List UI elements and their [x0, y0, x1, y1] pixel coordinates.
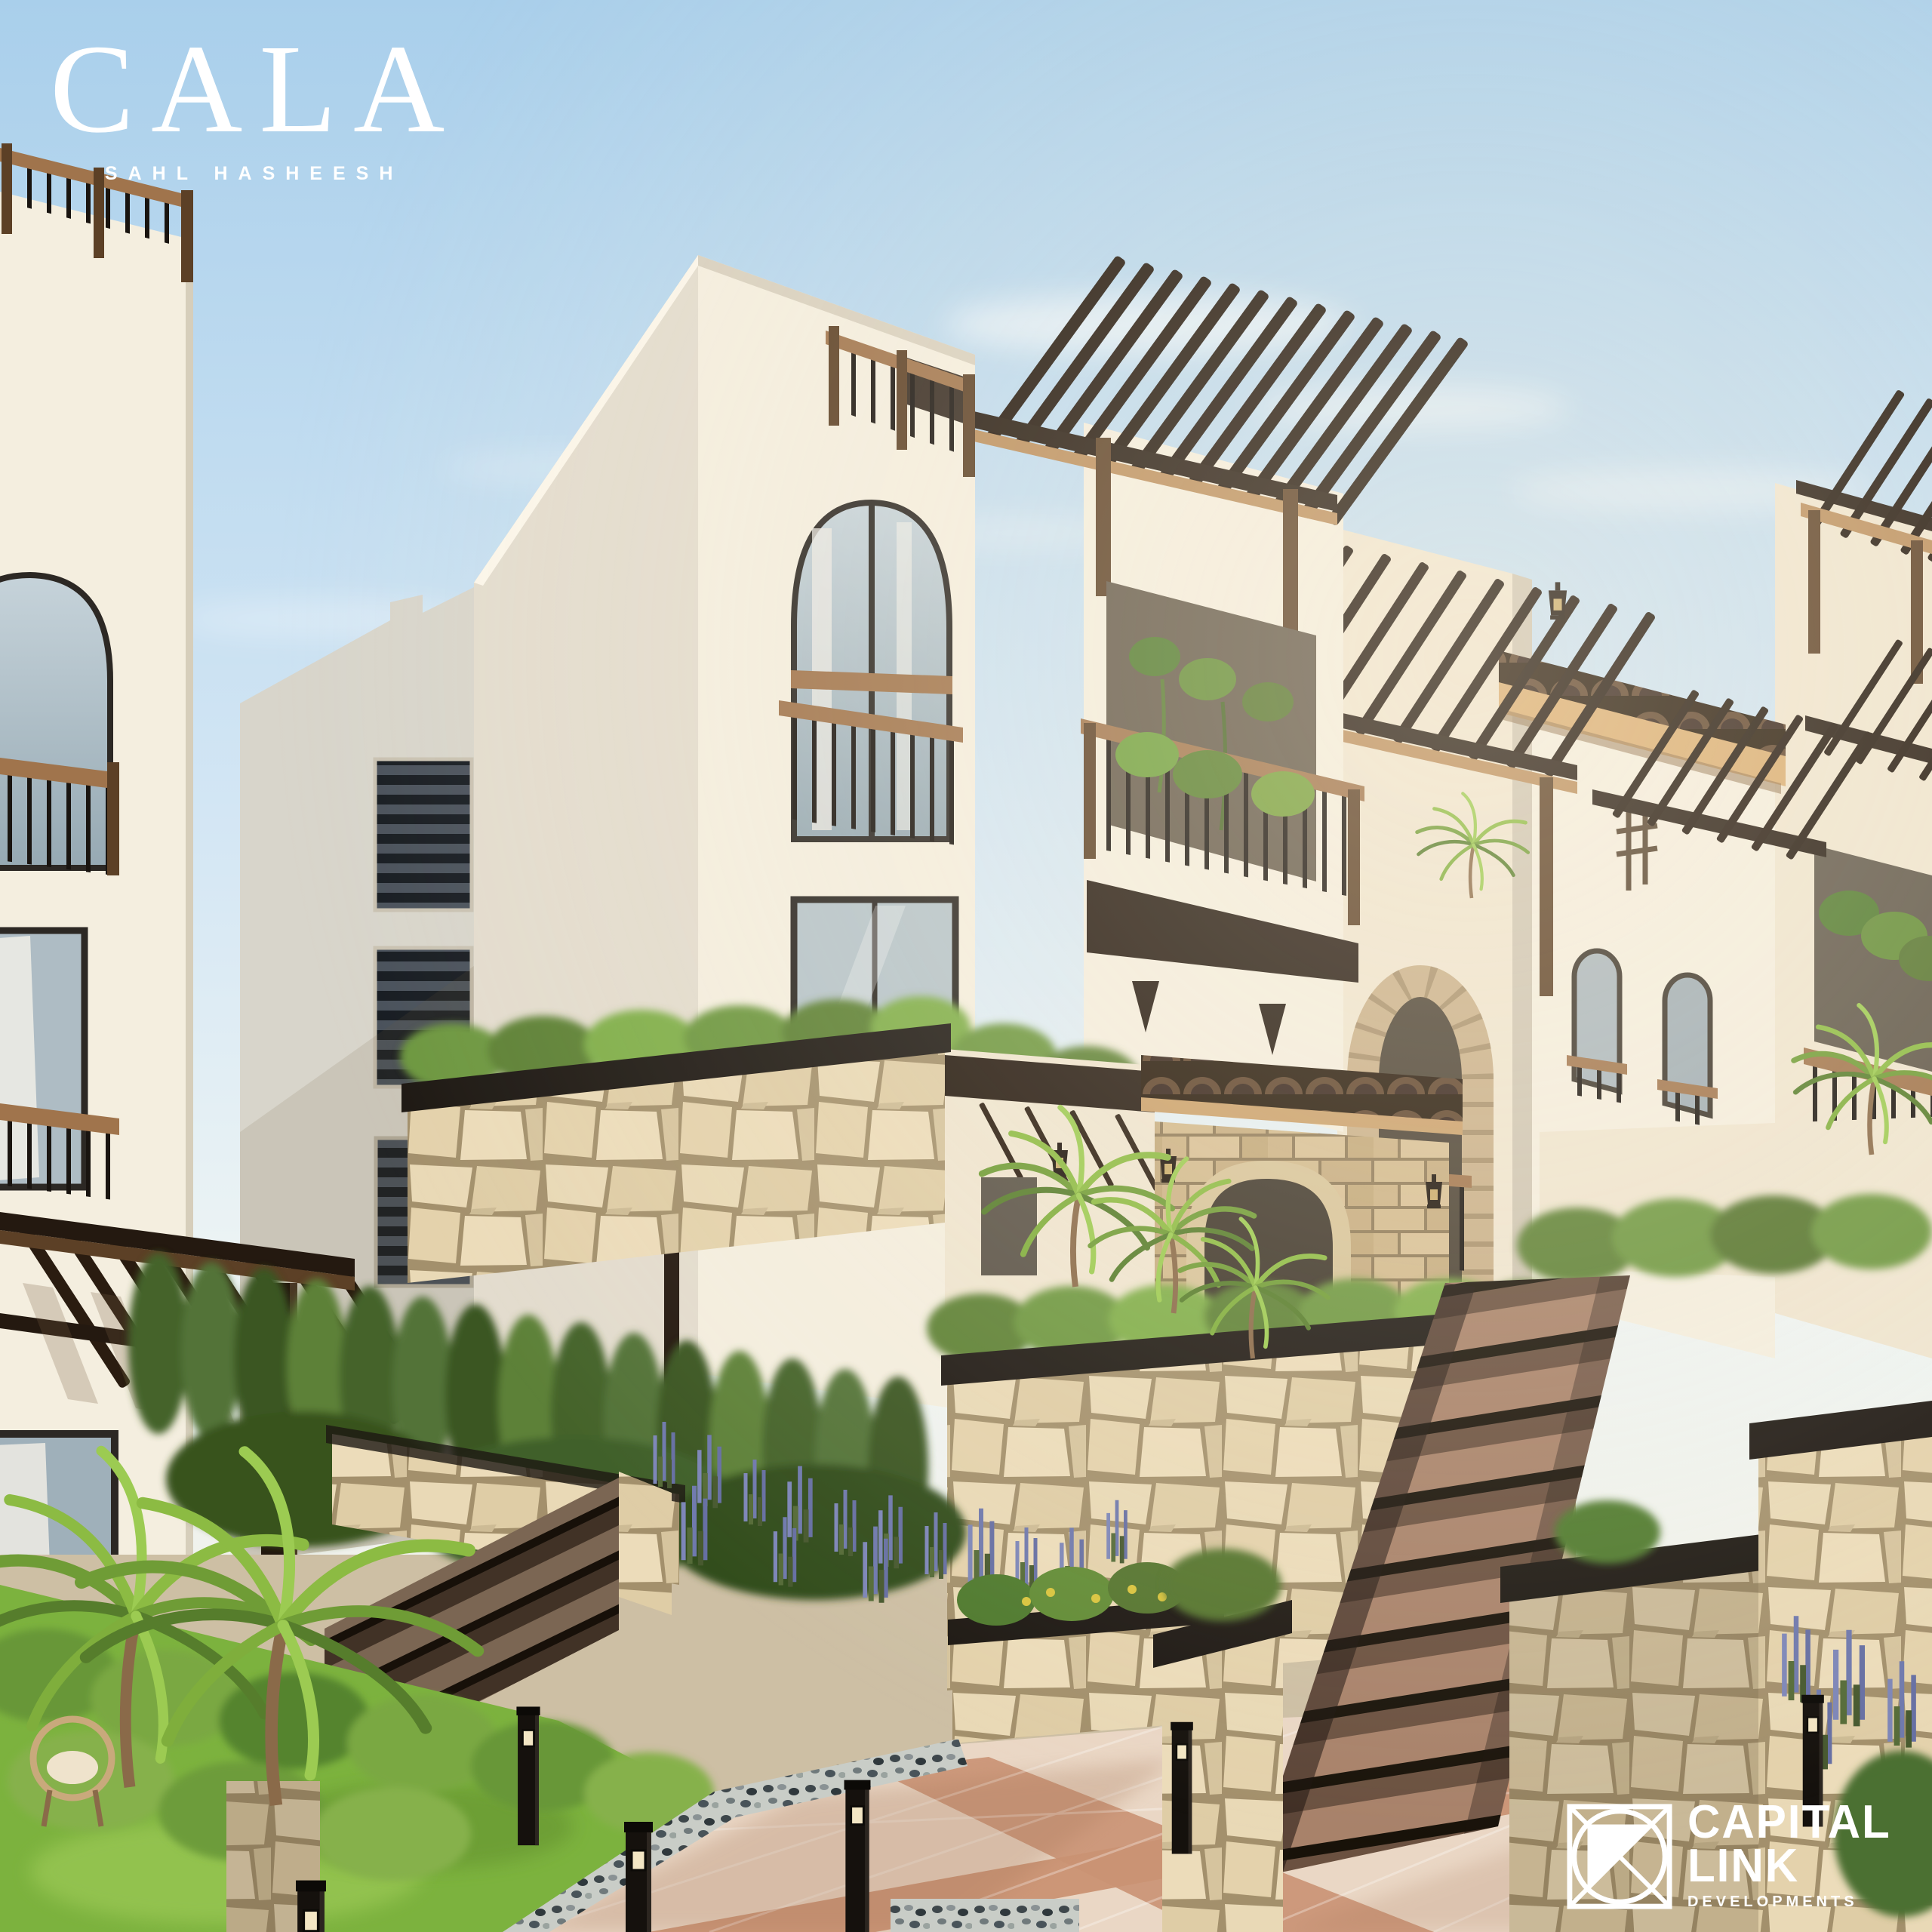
developer-name-line2: LINK: [1687, 1844, 1891, 1888]
developer-tagline: DEVELOPMENTS: [1687, 1894, 1897, 1911]
capital-link-mark-icon: [1564, 1801, 1675, 1912]
capital-link-logo: CAPITAL LINK DEVELOPMENTS: [1564, 1801, 1897, 1912]
cala-logo: CALA SAHL HASHEESH: [42, 23, 461, 185]
developer-name-line1: CAPITAL: [1687, 1801, 1891, 1844]
project-name: CALA: [50, 23, 461, 155]
sunlight-overlay: [0, 0, 1932, 1932]
project-location: SAHL HASHEESH: [47, 163, 461, 185]
capital-link-wordmark: CAPITAL LINK DEVELOPMENTS: [1687, 1801, 1897, 1912]
rendering-canvas: CALA SAHL HASHEESH CAPITAL LINK DEVELOPM…: [0, 0, 1932, 1932]
scene-illustration: [0, 0, 1932, 1932]
